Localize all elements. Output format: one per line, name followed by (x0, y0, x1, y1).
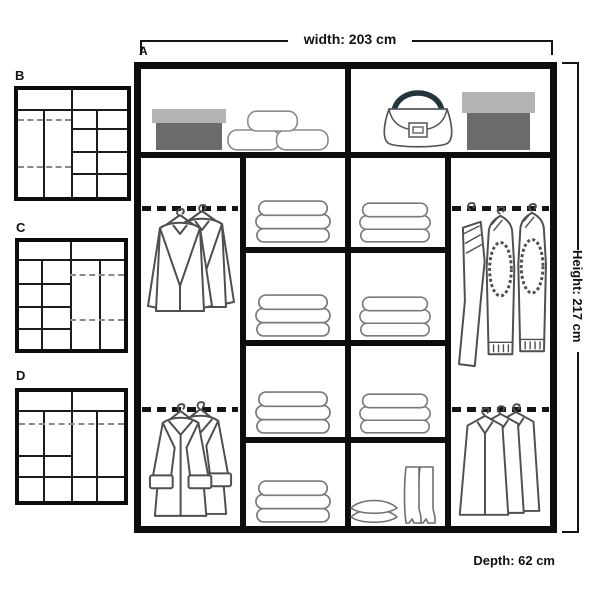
shelf-divider (19, 328, 70, 330)
folded-clothes-icon (255, 479, 331, 524)
folded-clothes-icon (255, 199, 331, 244)
shelf-divider (240, 340, 451, 346)
height-bracket-line (577, 62, 579, 250)
folded-clothes-icon (359, 392, 431, 435)
hanging-rail (18, 119, 71, 121)
variant-d-label: D (16, 368, 25, 383)
shelf-divider (19, 306, 70, 308)
shoe-box-icon (152, 109, 226, 151)
hanging-rail (70, 319, 124, 321)
variant-b-label: B (15, 68, 24, 83)
pillows-icon (349, 497, 399, 525)
column-divider (99, 259, 101, 349)
width-bracket-right-tick (551, 40, 553, 55)
variant-b-thumbnail (14, 86, 131, 201)
column-divider (240, 152, 246, 526)
sweaters-on-hangers-icon (451, 202, 548, 374)
height-bracket-line (577, 352, 579, 533)
main-wardrobe-unit (134, 62, 557, 533)
shelf-divider (240, 437, 451, 443)
cushion-stack-icon (228, 110, 328, 151)
column-divider (43, 109, 45, 197)
shirts-on-hangers-icon (452, 401, 549, 520)
variant-c-label: C (16, 220, 25, 235)
folded-clothes-icon (359, 201, 431, 244)
folded-clothes-icon (255, 293, 331, 338)
shelf-divider (71, 128, 127, 130)
variant-d-thumbnail (15, 388, 128, 505)
hanging-rail (18, 166, 71, 168)
top-column-divider (345, 69, 351, 152)
coats-on-hangers-icon (145, 401, 238, 522)
variant-c-thumbnail (15, 238, 128, 353)
width-bracket-line (141, 40, 288, 42)
column-divider (71, 90, 73, 197)
column-divider (96, 109, 98, 197)
handbag-icon (380, 83, 456, 150)
shelf-divider (240, 247, 451, 253)
hanging-pants (459, 203, 485, 366)
width-dimension-label: width: 203 cm (288, 31, 412, 47)
shelf-divider (19, 476, 124, 478)
shelf-divider (71, 173, 127, 175)
height-bracket-top-tick (562, 62, 578, 64)
depth-dimension-label: Depth: 62 cm (430, 553, 555, 568)
column-divider (41, 259, 43, 349)
jackets-on-hangers-icon (144, 202, 238, 330)
column-divider (71, 392, 73, 501)
storage-box-icon (462, 92, 535, 150)
folded-clothes-icon (255, 390, 331, 435)
hanging-rail (70, 274, 124, 276)
column-divider (345, 152, 351, 526)
shelf-divider (19, 283, 70, 285)
height-bracket-bottom-tick (562, 531, 578, 533)
folded-clothes-icon (359, 295, 431, 338)
boots-icon (402, 465, 438, 525)
wardrobe-dimension-diagram: { "dimensions": { "width_label": "width:… (0, 0, 600, 600)
height-dimension-label: Height: 217 cm (570, 250, 585, 350)
shelf-divider (71, 151, 127, 153)
width-bracket-line (412, 40, 552, 42)
column-divider (70, 242, 72, 349)
main-unit-label: A (139, 44, 148, 58)
hanging-rail (19, 423, 124, 425)
shelf-divider (19, 455, 71, 457)
